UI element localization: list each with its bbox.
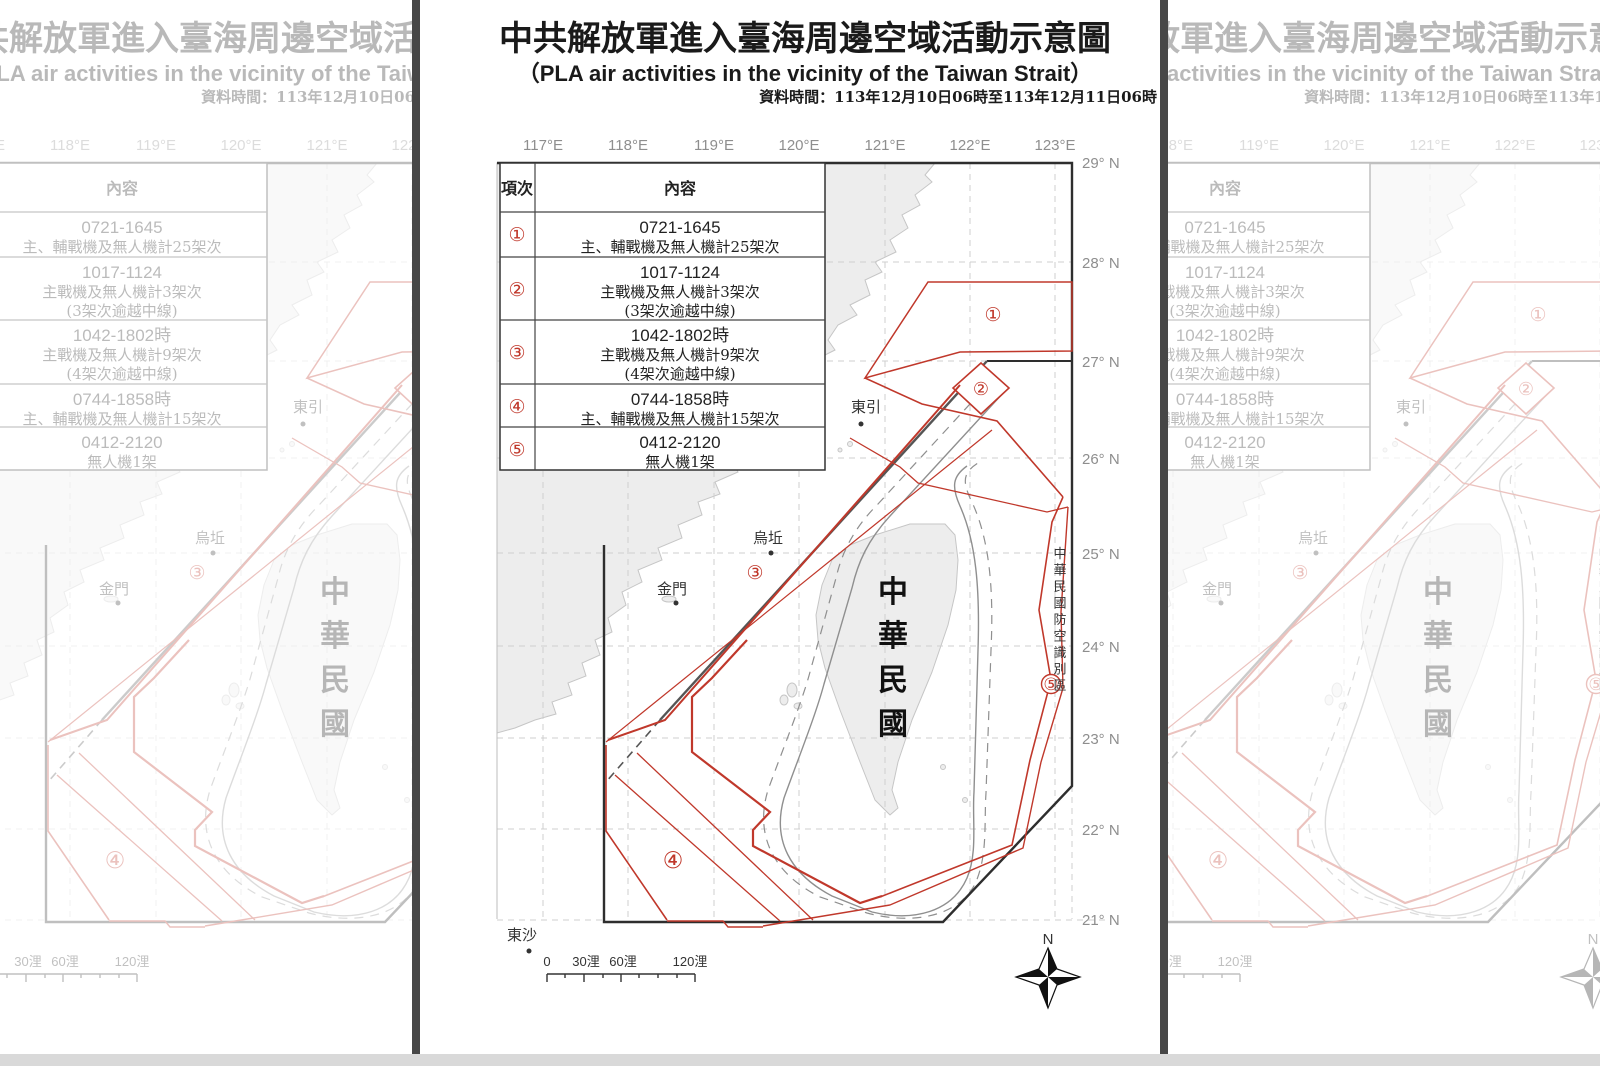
carousel-current-image [420, 0, 1160, 1066]
screenshot-root: 中共解放軍進入臺海周邊空域活動示意圖 （PLA air activities i… [0, 0, 1600, 1066]
bottom-ui-strip [0, 1054, 1600, 1066]
